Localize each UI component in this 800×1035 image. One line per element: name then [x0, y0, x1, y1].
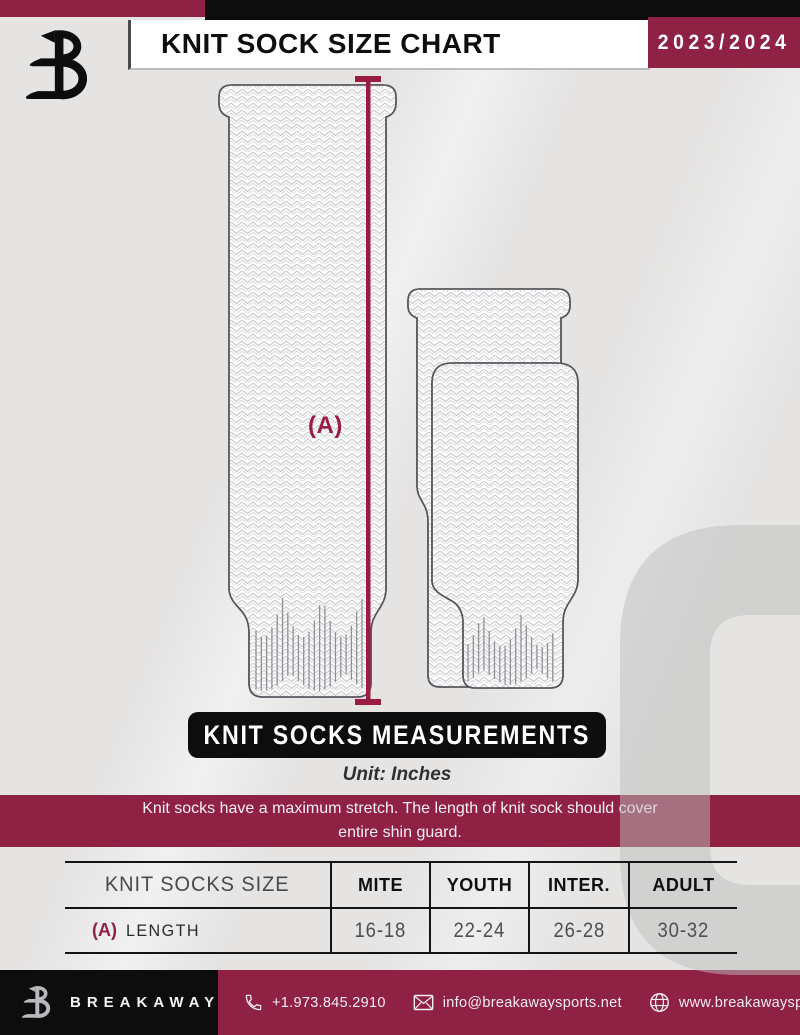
contact-email: info@breakawaysports.net: [413, 994, 622, 1011]
size-table: KNIT SOCKS SIZE MITE YOUTH INTER. ADULT …: [65, 861, 737, 954]
length-value-inter: 26-28: [528, 909, 628, 952]
size-table-title-cell: KNIT SOCKS SIZE: [65, 863, 330, 907]
note-line-1: Knit socks have a maximum stretch. The l…: [142, 797, 658, 821]
breakaway-footer-logo: [22, 983, 58, 1023]
length-row-label: LENGTH: [126, 921, 200, 941]
length-ref-a: (A): [92, 920, 117, 941]
length-value-adult: 30-32: [628, 909, 737, 952]
phone-icon: [244, 993, 263, 1012]
footer-contacts: +1.973.845.2910 info@breakawaysports.net…: [218, 970, 800, 1035]
sock-diagram: (A): [0, 75, 800, 715]
top-strip-maroon: [0, 0, 205, 17]
season-label: 2023/2024: [658, 31, 791, 55]
size-table-header-row: KNIT SOCKS SIZE MITE YOUTH INTER. ADULT: [65, 863, 737, 909]
size-table-length-row: (A) LENGTH 16-18 22-24 26-28 30-32: [65, 909, 737, 952]
sock-illustration: [0, 75, 800, 715]
measure-label-a: (A): [308, 412, 343, 440]
size-table-title: KNIT SOCKS SIZE: [105, 873, 290, 897]
email-address: info@breakawaysports.net: [443, 995, 622, 1011]
note-line-2: entire shin guard.: [338, 821, 462, 845]
brand-name: BREAKAWAY: [70, 994, 220, 1011]
globe-icon: [649, 992, 670, 1013]
column-header-adult: ADULT: [628, 863, 737, 907]
column-header-inter: INTER.: [528, 863, 628, 907]
season-badge: 2023/2024: [648, 17, 800, 68]
email-icon: [413, 994, 434, 1011]
footer-brand-panel: BREAKAWAY: [0, 970, 218, 1035]
measurements-banner: KNIT SOCKS MEASUREMENTS: [188, 712, 606, 758]
length-value-mite: 16-18: [330, 909, 429, 952]
column-header-youth: YOUTH: [429, 863, 528, 907]
knit-sock-size-chart-poster: KNIT SOCK SIZE CHART 2023/2024: [0, 0, 800, 1035]
breakaway-logo: [26, 24, 104, 110]
stretch-note-banner: Knit socks have a maximum stretch. The l…: [0, 795, 800, 847]
footer: BREAKAWAY +1.973.845.2910 info@breakaway…: [0, 970, 800, 1035]
page-title: KNIT SOCK SIZE CHART: [161, 28, 501, 60]
contact-phone: +1.973.845.2910: [244, 993, 386, 1012]
measurements-banner-title: KNIT SOCKS MEASUREMENTS: [204, 720, 591, 751]
length-row-label-cell: (A) LENGTH: [65, 909, 330, 952]
title-box: KNIT SOCK SIZE CHART: [128, 20, 650, 70]
column-header-mite: MITE: [330, 863, 429, 907]
contact-website: www.breakawaysports.net: [649, 992, 800, 1013]
website-url: www.breakawaysports.net: [679, 995, 800, 1011]
length-value-youth: 22-24: [429, 909, 528, 952]
unit-label: Unit: Inches: [97, 764, 697, 786]
phone-number: +1.973.845.2910: [272, 995, 386, 1011]
